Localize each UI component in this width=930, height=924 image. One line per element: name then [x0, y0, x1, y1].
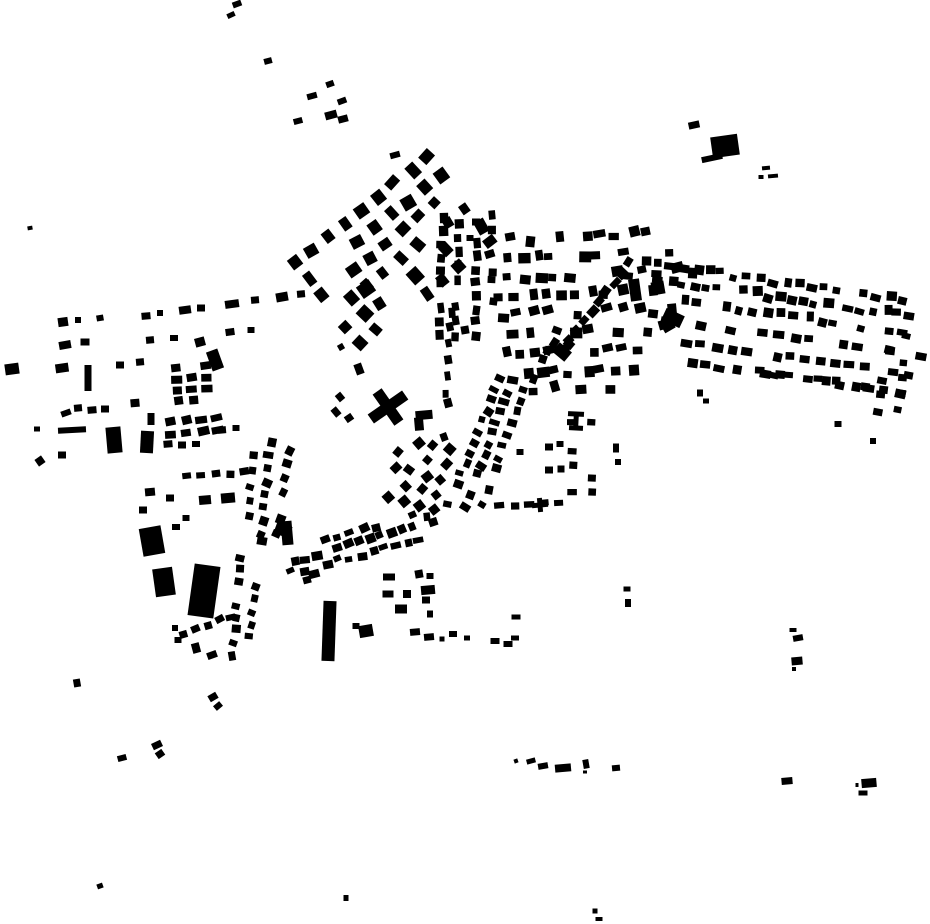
- building: [832, 287, 840, 295]
- building: [583, 771, 587, 774]
- building: [776, 308, 785, 317]
- building: [832, 376, 841, 384]
- building: [152, 567, 176, 598]
- building: [163, 440, 173, 448]
- building: [85, 365, 92, 391]
- building: [454, 234, 461, 242]
- building: [529, 288, 538, 300]
- building: [548, 274, 556, 282]
- building: [669, 276, 679, 286]
- building: [344, 895, 349, 901]
- building: [579, 251, 591, 262]
- building: [605, 385, 615, 394]
- building: [403, 590, 411, 598]
- building: [563, 371, 572, 378]
- building: [502, 273, 510, 281]
- building: [739, 285, 748, 293]
- building: [267, 437, 277, 447]
- building: [491, 638, 500, 644]
- building: [353, 623, 360, 629]
- building: [617, 283, 630, 296]
- building: [757, 328, 768, 337]
- building: [487, 276, 495, 283]
- building: [664, 262, 676, 270]
- building: [197, 305, 205, 312]
- building-footprint-map: [0, 0, 930, 924]
- building: [498, 313, 510, 323]
- building: [888, 368, 899, 376]
- building: [195, 415, 208, 424]
- building: [790, 333, 802, 344]
- building: [697, 390, 703, 397]
- building: [183, 515, 190, 521]
- building: [785, 352, 794, 360]
- building: [519, 274, 531, 284]
- building: [876, 390, 885, 398]
- building: [455, 247, 463, 258]
- building: [790, 628, 797, 632]
- building: [694, 265, 705, 276]
- building: [759, 175, 764, 179]
- building: [448, 307, 456, 318]
- building: [526, 327, 535, 338]
- building: [535, 273, 548, 284]
- building: [727, 345, 738, 355]
- building: [624, 587, 631, 592]
- building: [535, 250, 544, 261]
- building: [556, 290, 567, 300]
- building: [231, 624, 241, 633]
- building: [511, 636, 519, 641]
- building: [244, 633, 253, 640]
- building: [192, 441, 200, 447]
- building: [170, 335, 178, 341]
- building: [211, 470, 220, 478]
- building: [716, 268, 724, 275]
- building: [199, 495, 212, 505]
- building: [545, 444, 553, 451]
- building: [633, 346, 643, 354]
- building: [467, 235, 474, 241]
- building: [74, 404, 83, 412]
- building: [443, 390, 449, 398]
- building: [449, 631, 457, 637]
- building: [494, 502, 505, 509]
- building: [813, 375, 822, 382]
- building: [87, 406, 97, 414]
- building: [344, 556, 352, 563]
- building: [792, 667, 796, 671]
- building: [55, 363, 69, 374]
- building: [884, 327, 893, 335]
- building: [136, 358, 145, 366]
- building: [555, 763, 572, 772]
- building: [383, 574, 395, 581]
- building: [300, 567, 310, 576]
- building: [557, 441, 564, 447]
- building: [410, 628, 421, 636]
- building: [859, 791, 868, 796]
- building: [558, 466, 565, 473]
- building: [148, 413, 155, 425]
- building: [823, 298, 835, 309]
- building: [172, 524, 180, 530]
- building: [839, 340, 849, 350]
- building: [455, 219, 465, 229]
- building: [472, 291, 481, 301]
- building: [116, 362, 124, 369]
- building: [757, 273, 766, 282]
- building: [233, 425, 240, 431]
- building: [741, 272, 750, 279]
- building: [593, 909, 598, 914]
- building: [869, 307, 878, 316]
- building: [835, 421, 842, 427]
- building: [248, 466, 256, 474]
- building: [444, 355, 453, 365]
- building: [311, 551, 323, 562]
- building: [564, 273, 576, 283]
- building: [568, 448, 577, 455]
- building: [423, 512, 430, 521]
- building: [681, 295, 689, 305]
- building: [570, 290, 579, 299]
- building: [421, 585, 436, 595]
- building: [539, 499, 549, 506]
- building: [291, 556, 301, 566]
- building: [773, 330, 785, 339]
- building: [706, 265, 715, 274]
- building: [590, 251, 600, 259]
- building: [141, 312, 151, 320]
- building: [775, 291, 787, 301]
- building: [75, 317, 81, 323]
- building: [763, 307, 774, 318]
- building: [508, 293, 518, 301]
- building: [899, 359, 907, 366]
- building: [515, 350, 524, 359]
- building: [464, 636, 470, 641]
- building: [506, 330, 518, 339]
- building: [473, 250, 482, 261]
- building: [584, 366, 595, 378]
- building: [851, 382, 861, 393]
- building: [180, 429, 191, 438]
- building: [173, 386, 182, 394]
- building: [234, 577, 244, 586]
- building: [524, 501, 535, 508]
- building: [816, 357, 826, 366]
- building: [178, 442, 186, 449]
- building: [695, 340, 705, 348]
- building: [424, 633, 435, 641]
- building: [503, 253, 512, 263]
- building: [678, 264, 690, 274]
- building: [544, 253, 553, 260]
- building: [807, 311, 814, 321]
- building: [471, 331, 481, 341]
- building: [687, 358, 698, 369]
- building: [383, 591, 394, 598]
- building: [648, 309, 659, 319]
- building: [612, 328, 624, 338]
- building: [225, 328, 235, 336]
- building: [798, 296, 809, 306]
- building: [472, 305, 480, 315]
- building: [843, 361, 854, 369]
- building: [665, 249, 673, 257]
- building: [414, 569, 423, 578]
- building: [554, 500, 563, 506]
- building: [613, 444, 619, 453]
- building: [221, 492, 236, 503]
- building: [4, 363, 19, 376]
- building: [615, 459, 621, 465]
- building: [484, 485, 493, 495]
- building: [139, 507, 147, 514]
- building: [186, 385, 197, 393]
- building: [870, 438, 876, 444]
- building: [513, 406, 521, 415]
- building: [357, 552, 368, 561]
- building: [157, 310, 163, 316]
- building: [435, 330, 444, 340]
- building: [861, 778, 877, 788]
- building: [783, 372, 794, 379]
- building: [489, 268, 497, 276]
- building: [189, 395, 199, 404]
- building: [804, 335, 813, 342]
- building: [741, 347, 753, 357]
- building: [454, 275, 460, 285]
- building: [96, 314, 104, 321]
- building: [245, 512, 254, 521]
- building: [201, 374, 211, 382]
- building: [788, 311, 799, 319]
- building: [529, 388, 538, 396]
- building: [791, 657, 803, 666]
- building: [596, 917, 603, 921]
- building: [251, 296, 260, 304]
- building: [260, 490, 269, 498]
- building: [259, 503, 268, 511]
- building: [436, 266, 445, 274]
- building: [166, 495, 174, 502]
- building: [537, 367, 551, 379]
- building: [414, 417, 424, 431]
- building: [358, 624, 374, 638]
- building: [722, 301, 731, 312]
- building: [648, 284, 658, 296]
- building: [57, 317, 68, 327]
- building: [422, 597, 430, 604]
- building: [105, 426, 122, 453]
- building: [755, 367, 765, 374]
- building: [569, 461, 577, 469]
- building: [830, 359, 841, 368]
- building: [200, 361, 211, 370]
- building: [186, 373, 197, 382]
- building: [493, 293, 502, 301]
- building: [73, 678, 81, 687]
- building: [451, 332, 459, 341]
- building: [573, 311, 581, 320]
- building: [803, 375, 813, 383]
- building: [171, 363, 181, 372]
- building: [435, 317, 444, 326]
- building: [172, 625, 178, 631]
- building: [822, 376, 831, 386]
- building: [587, 419, 595, 426]
- building: [226, 470, 234, 478]
- building: [567, 489, 577, 495]
- building: [470, 316, 480, 325]
- building: [263, 464, 272, 472]
- building: [588, 474, 596, 481]
- building: [471, 266, 480, 275]
- building: [784, 278, 792, 288]
- building: [555, 231, 564, 242]
- building: [588, 488, 596, 495]
- building: [236, 565, 244, 573]
- building: [860, 382, 870, 391]
- building: [201, 385, 212, 393]
- building: [896, 389, 906, 397]
- building: [130, 399, 140, 408]
- building: [460, 325, 469, 334]
- map-svg: [0, 0, 930, 924]
- building: [590, 348, 599, 357]
- building: [34, 427, 40, 432]
- building: [712, 284, 720, 290]
- building: [898, 374, 907, 382]
- building: [140, 431, 154, 454]
- building: [488, 210, 495, 220]
- building: [470, 277, 480, 286]
- building: [643, 327, 652, 337]
- building: [511, 502, 519, 509]
- building: [440, 637, 445, 642]
- building: [703, 399, 709, 404]
- building: [567, 419, 577, 425]
- building: [171, 376, 182, 384]
- building: [654, 259, 662, 267]
- building: [732, 365, 742, 375]
- building: [629, 364, 640, 375]
- building: [612, 765, 620, 772]
- building: [174, 396, 184, 405]
- building: [652, 276, 663, 283]
- building: [529, 348, 540, 358]
- building: [512, 615, 521, 620]
- building: [146, 336, 155, 344]
- building: [196, 472, 205, 479]
- building: [444, 371, 451, 381]
- building: [517, 449, 524, 455]
- building: [473, 238, 481, 249]
- building: [541, 288, 551, 299]
- building: [27, 226, 33, 231]
- building: [248, 327, 255, 333]
- building: [781, 777, 793, 785]
- building: [891, 308, 901, 315]
- building: [58, 452, 66, 459]
- building: [819, 283, 827, 290]
- building: [611, 366, 621, 375]
- building: [569, 425, 583, 431]
- building: [145, 488, 156, 497]
- building: [545, 467, 553, 474]
- building: [395, 605, 407, 614]
- building: [165, 431, 176, 439]
- building: [753, 286, 763, 296]
- building: [299, 556, 310, 564]
- building: [642, 256, 652, 265]
- building: [246, 497, 254, 505]
- building: [427, 573, 434, 579]
- building: [504, 641, 513, 647]
- building: [239, 467, 250, 476]
- building: [625, 599, 631, 607]
- building: [427, 611, 433, 618]
- building: [81, 339, 90, 346]
- building: [691, 298, 701, 307]
- building: [795, 279, 805, 288]
- building: [851, 342, 863, 351]
- building: [886, 291, 897, 301]
- building: [297, 290, 306, 298]
- building: [249, 451, 258, 459]
- building: [437, 302, 445, 313]
- building: [609, 233, 619, 240]
- building: [583, 231, 593, 241]
- building: [762, 166, 770, 171]
- building: [701, 284, 710, 292]
- building: [575, 385, 586, 395]
- building: [321, 601, 336, 661]
- building: [860, 362, 870, 370]
- building: [856, 783, 859, 787]
- building: [799, 355, 810, 363]
- building: [700, 360, 711, 369]
- building: [518, 253, 531, 264]
- building: [525, 236, 535, 248]
- building: [667, 303, 677, 315]
- building: [859, 289, 868, 297]
- building: [101, 406, 109, 413]
- building: [182, 472, 191, 479]
- building: [179, 305, 192, 315]
